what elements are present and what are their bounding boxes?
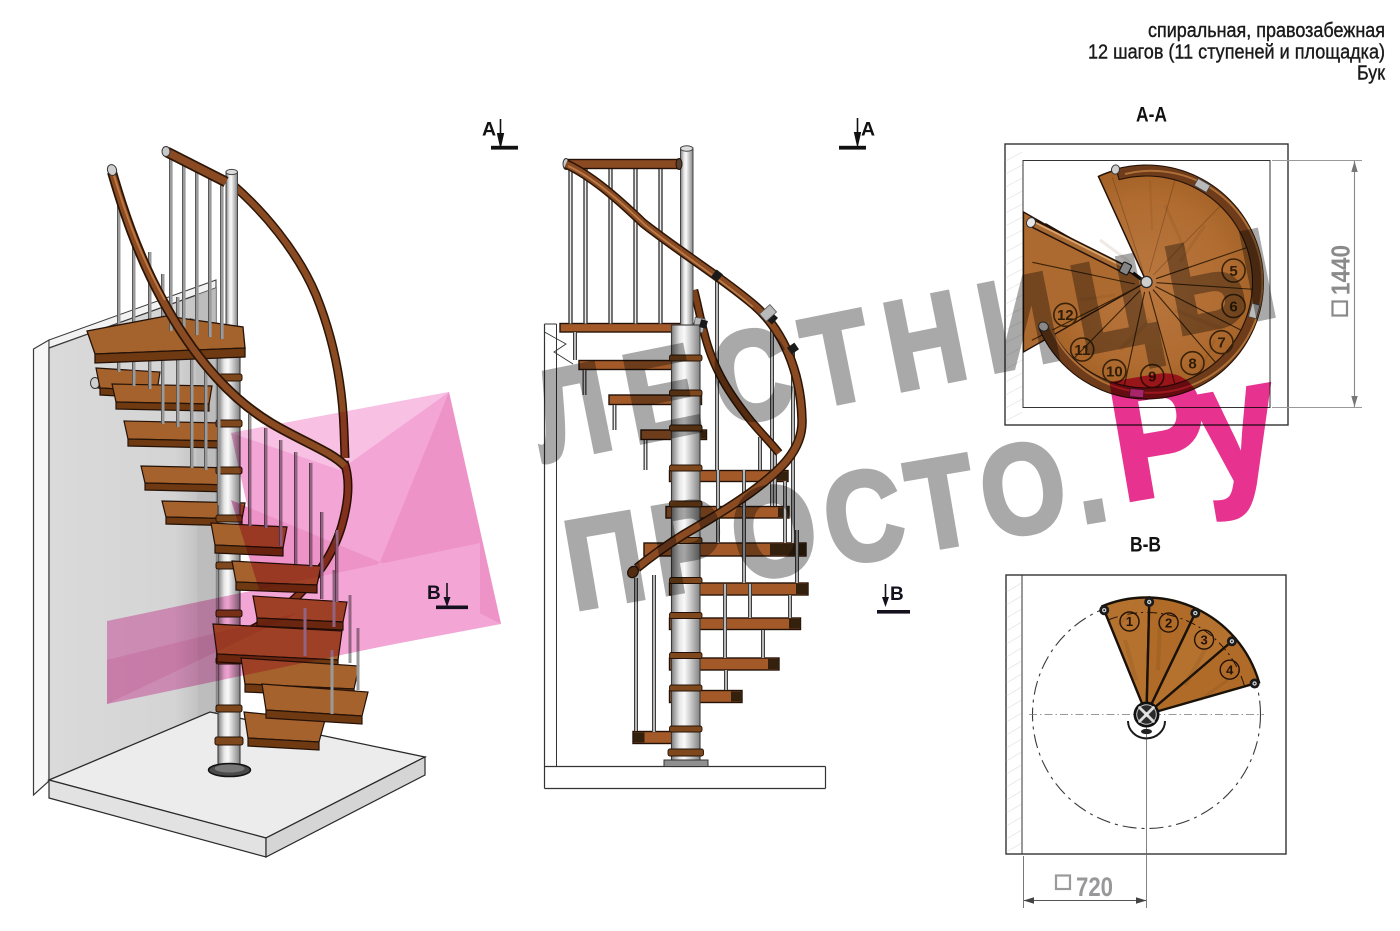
svg-text:2: 2	[1165, 615, 1172, 630]
svg-text:спиральная, правозабежная: спиральная, правозабежная	[1148, 19, 1385, 42]
svg-text:B: B	[890, 584, 904, 605]
svg-text:Ру: Ру	[1096, 322, 1290, 537]
svg-text:720: 720	[1076, 872, 1113, 902]
svg-text:12 шагов (11 ступеней и площад: 12 шагов (11 ступеней и площадка)	[1088, 41, 1385, 64]
svg-text:В-В: В-В	[1130, 534, 1161, 557]
svg-text:1: 1	[1126, 614, 1133, 629]
svg-text:3: 3	[1200, 632, 1207, 647]
svg-text:A: A	[861, 119, 875, 141]
svg-text:A: A	[482, 119, 496, 141]
svg-text:12: 12	[1057, 307, 1074, 324]
svg-text:4: 4	[1226, 662, 1234, 677]
svg-text:B: B	[427, 583, 441, 604]
svg-text:А-А: А-А	[1136, 104, 1167, 127]
svg-text:1440: 1440	[1326, 245, 1356, 295]
svg-text:Бук: Бук	[1357, 62, 1386, 85]
